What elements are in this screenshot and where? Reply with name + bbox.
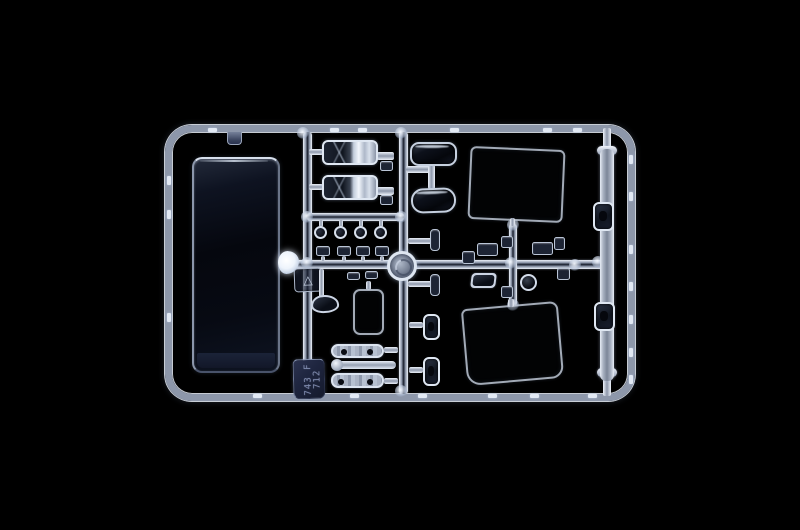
frame-tick [629,282,633,291]
frame-tick [629,245,633,254]
bar-lens-part [430,229,440,251]
frame-tick [208,128,217,132]
frame-tick [488,394,497,398]
frame-tick [530,394,539,398]
small-clip-part [380,195,393,205]
frame-tick [350,394,359,398]
roof-light-bar-part [331,373,384,388]
light-bar-hole [367,349,373,355]
light-bar-hole [341,349,347,355]
frame-tick [167,176,171,185]
sprue-gate-stem [380,256,384,261]
frame-tick [629,348,633,357]
frame-tick [167,313,171,322]
frame-tick [629,155,633,164]
sprue-gate-stem [406,166,430,173]
part-number-text: 712 [312,360,324,398]
tail-lens-part [423,314,440,340]
sprue-gate-stem [377,152,394,160]
sprue-gate-stem [384,347,398,353]
part-number-tag: 743 F 712 [292,359,325,400]
frame-tick [629,315,633,324]
rect-lens-part [356,246,370,256]
sprue-photo: △ 743 F 712 [0,0,800,530]
runner-joint [505,257,517,269]
rect-lens-part [365,271,378,279]
rect-lens-part [316,246,330,256]
small-lens-part [462,251,475,264]
light-bar-hole [338,379,344,385]
small-lens-part [554,237,565,250]
side-window-glass-part [467,146,565,223]
frame-tick [573,128,582,132]
bar-lens-part [430,274,440,296]
chrome-visor-part [322,140,378,165]
small-lens-part [557,268,570,280]
frame-tick [167,210,171,219]
runner-joint [395,385,407,397]
rect-lens-part [477,243,498,256]
sprue-gate-stem [342,256,346,261]
runner-joint [301,211,313,223]
rect-lens-part [375,246,389,256]
small-window-glass-part [353,289,384,335]
round-lamp-lens-part [314,226,327,239]
runner-joint [395,211,407,223]
mirror-glass-part [411,187,457,214]
frame-tick [629,192,633,201]
mirror-housing-part [470,273,497,288]
tail-lens-part [423,357,440,386]
side-window-glass-part [461,301,564,386]
frame-tick [588,394,597,398]
round-lamp-lens-part [354,226,367,239]
runner-joint [297,127,309,139]
frame-tick [418,394,427,398]
rect-lens-part [337,246,351,256]
sprue-gate-stem [408,281,432,287]
sprue-gate-stem [319,269,324,298]
round-lamp-lens-part [334,226,347,239]
roof-light-bar-part [331,344,384,358]
sprue-gate-stem [321,256,325,261]
frame-tick [253,394,262,398]
small-lens-part [501,286,513,298]
rect-lens-part [347,272,360,280]
frame-tick [629,375,633,384]
runner-joint [395,127,407,139]
frame-tick [330,128,339,132]
sprue-gate-stem [309,149,323,155]
sprue-gate-stem [409,367,423,373]
frame-tick [358,128,367,132]
small-lens-part [501,236,513,248]
sprue-gate-stem [510,218,515,226]
sprue-gate-stem [428,165,435,189]
sprue-gate-stem [408,238,432,244]
mirror-glass-part [410,142,457,166]
strip-lens-part [594,302,615,331]
windshield-glass-part [192,157,280,373]
sprue-gate-stem [409,322,423,328]
recycling-triangle-icon: △ [303,274,313,286]
center-sprue-boss [387,251,417,281]
sprue-gate-stem [384,378,398,384]
sprue-gate-stem [361,256,365,261]
antenna-rod-part [337,361,396,369]
round-lens-part [520,274,537,291]
light-bar-hole [367,379,373,385]
frame-tick [543,128,552,132]
sprue-gate-stem [309,184,323,190]
rect-lens-part [532,242,553,255]
runner-joint [569,259,581,271]
sprue-gate-stem [377,187,394,195]
chrome-visor-part [322,175,378,200]
round-lamp-lens-part [374,226,387,239]
strip-lens-part [593,202,614,231]
frame-clip-tab [227,132,242,145]
small-clip-part [380,161,393,171]
frame-tick [450,128,459,132]
chrome-trim-strip-part [600,149,614,381]
sprue-gate-stem [508,299,514,307]
